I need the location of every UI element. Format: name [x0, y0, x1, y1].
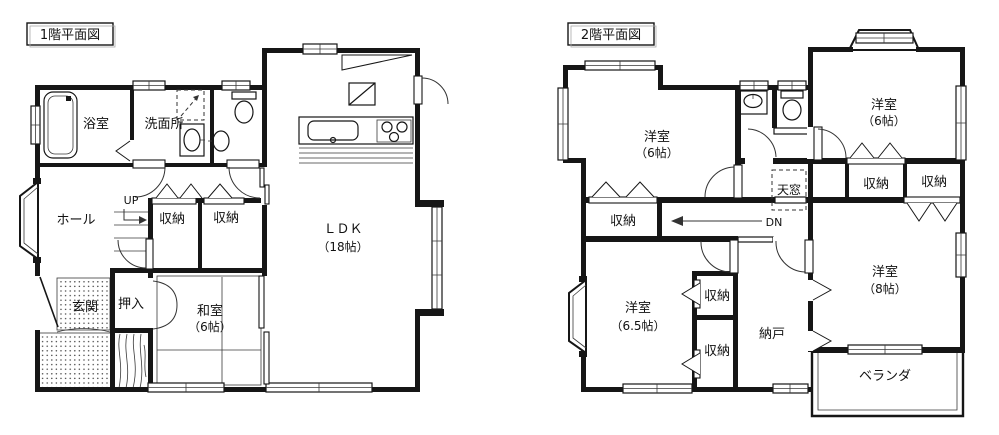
entrance-label: 玄関 [72, 300, 98, 315]
closet2-door [204, 184, 244, 204]
closet-e-label: 収納 [704, 344, 730, 359]
bedroom-sw-label: 洋室 [625, 300, 651, 316]
bedroom-ne-label: 洋室 [871, 97, 897, 113]
bedroom-sw-bay-window [569, 276, 587, 357]
floor1-plan: 浴室 洗面所 ホール UP 収納 収納 玄関 押入 和室 （6帖） ＬＤＫ （1… [20, 23, 448, 392]
toilet-fixtures [208, 92, 256, 151]
storeroom-label: 納戸 [759, 327, 785, 342]
closet1-doors [152, 184, 202, 204]
stairs-dn-label: DN [766, 216, 783, 229]
floor1-title-box: 1階平面図 [27, 23, 115, 47]
toilet-partition [774, 128, 808, 134]
bathtub-faucet [66, 96, 71, 101]
closet-a-label: 収納 [863, 177, 889, 192]
bedroom-se-size: （8帖） [863, 281, 907, 296]
ldk-size-label: （18帖） [317, 239, 368, 254]
bathtub [44, 92, 77, 158]
kitchen-area [299, 55, 413, 163]
ldk-corridor-sliding-door [260, 167, 269, 205]
oshiire-label: 押入 [118, 297, 144, 312]
corner-counter [342, 55, 412, 70]
back-door [414, 76, 448, 104]
bedroom-nw-size: （6帖） [635, 145, 679, 160]
bedroom-ne-size: （6帖） [862, 113, 906, 128]
ldk-bay-window [415, 200, 444, 316]
bedroom-ne-bay-window [845, 30, 924, 52]
veranda-label: ベランダ [859, 369, 911, 384]
storeroom-door [776, 240, 813, 273]
washitsu-label: 和室 [197, 303, 223, 319]
ldk-label: ＬＤＫ [323, 222, 362, 237]
stairwell-rail [738, 237, 773, 242]
closet-c-label: 収納 [610, 214, 636, 229]
floor1-title: 1階平面図 [40, 28, 100, 43]
bedroom-ne-door [807, 127, 846, 160]
floor2-title: 2階平面図 [581, 28, 641, 43]
toilet-tank-2f [781, 91, 803, 98]
washitsu-size-label: （6帖） [188, 319, 232, 334]
bedroom-se-label: 洋室 [872, 264, 898, 280]
toilet-bowl [235, 101, 253, 123]
floor-plan-drawing: 浴室 洗面所 ホール UP 収納 収納 玄関 押入 和室 （6帖） ＬＤＫ （1… [0, 0, 999, 435]
oshiire-double-doors [147, 278, 177, 329]
closet-d-label: 収納 [704, 289, 730, 304]
bathroom-fixtures [44, 92, 77, 158]
bathroom-label: 浴室 [83, 116, 109, 132]
hall-bay-window [20, 178, 41, 263]
toilet-tank [232, 92, 256, 99]
toilet-door [227, 160, 260, 198]
skylight-box: 天窓 [772, 170, 806, 210]
skylight-label: 天窓 [777, 182, 801, 197]
wood-floor-texture [119, 334, 146, 388]
stairs-up-arrow [124, 209, 147, 224]
washroom-door [133, 160, 165, 197]
hall-label: ホール [56, 213, 95, 228]
floor2-plan: 天窓 [558, 23, 966, 416]
floor-plan-page: 浴室 洗面所 ホール UP 収納 収納 玄関 押入 和室 （6帖） ＬＤＫ （1… [0, 0, 999, 435]
porch-floor-texture [39, 333, 112, 388]
washbasin-room-door [745, 129, 776, 165]
bedroom-ne-closet-doors [847, 143, 905, 164]
bedroom-nw-label: 洋室 [644, 129, 670, 145]
closet2-label: 収納 [213, 211, 239, 226]
washitsu-ldk-sliding-doors [259, 276, 269, 384]
toilet-bowl-2f [783, 100, 801, 120]
stairs-up-label: UP [124, 194, 139, 207]
bathroom-folding-door [116, 141, 130, 161]
closet-d-door [682, 280, 700, 308]
bedroom-se-closet-doors [904, 197, 960, 221]
closet1-label: 収納 [159, 212, 185, 227]
entrance-door [40, 277, 58, 327]
floor2-title-box: 2階平面図 [568, 23, 656, 47]
washroom-label: 洗面所 [144, 117, 183, 132]
bedroom-sw-size: （6.5帖） [610, 318, 665, 333]
counter-bar-lines [299, 148, 413, 163]
stairs-dn-arrow: DN [671, 216, 782, 229]
bedroom-nw-door [705, 165, 742, 198]
closet-c-doors [589, 182, 657, 203]
closet-e-door [682, 350, 700, 378]
hall-stairs-door [118, 239, 153, 269]
veranda-outline [812, 352, 963, 416]
stairs-up-treads [114, 212, 148, 251]
closet-b-label: 収納 [921, 175, 947, 190]
corner-basin [213, 131, 229, 151]
